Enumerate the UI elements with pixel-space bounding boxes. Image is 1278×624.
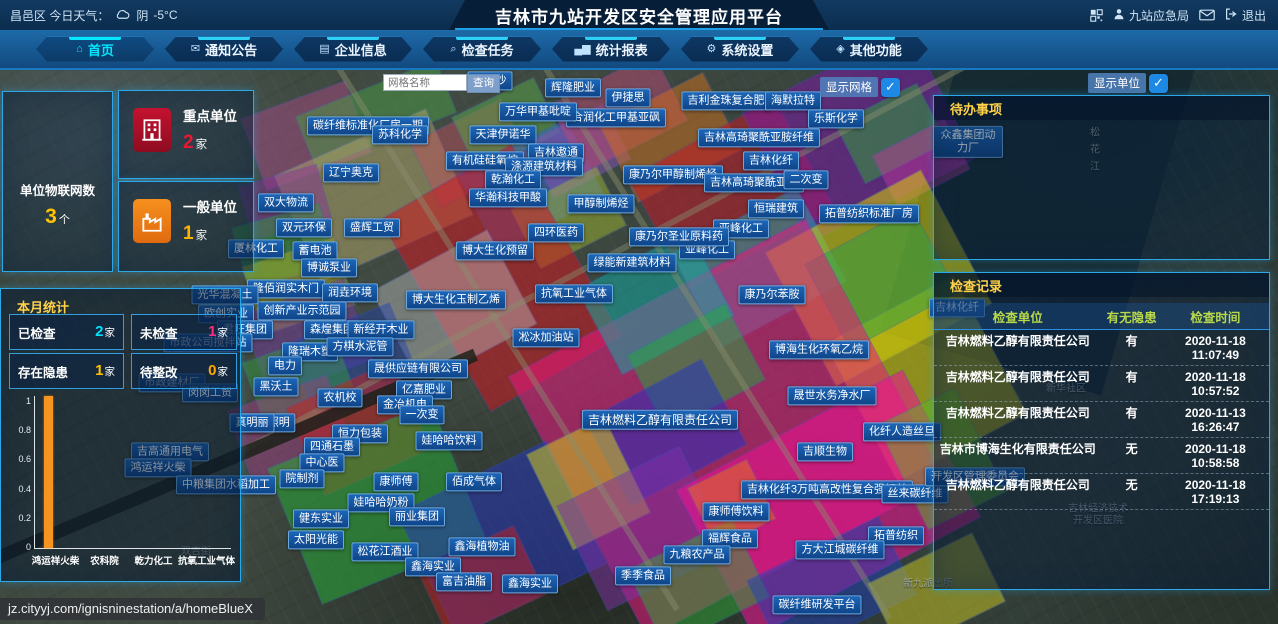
weather-label: 昌邑区 今日天气： <box>10 7 109 24</box>
iot-count-value: 3 <box>45 205 57 228</box>
map-company-label[interactable]: 康乃尔圣业原料药 <box>629 227 729 246</box>
general-units-panel: 一般单位 1家 <box>118 181 254 272</box>
nav-tab[interactable]: ▤ 企业信息 <box>294 37 412 62</box>
map-company-label[interactable]: 吉利金珠复合肥 <box>682 91 771 110</box>
map-company-label[interactable]: 鑫海植物油 <box>449 537 516 556</box>
map-company-label[interactable]: 隆佰润实木门 <box>247 279 325 298</box>
page-title: 吉林市九站开发区安全管理应用平台 <box>495 3 783 28</box>
map-company-label[interactable]: 博海生化环氧乙烷 <box>769 340 869 359</box>
bar-slot <box>133 396 182 548</box>
map-company-label[interactable]: 晟供应链有限公司 <box>368 359 468 378</box>
grid-search: 查询 <box>383 74 500 91</box>
map-company-label[interactable]: 电力 <box>268 356 302 375</box>
map-company-label[interactable]: 太阳光能 <box>288 530 344 549</box>
inspection-record-row: 吉林燃料乙醇有限责任公司 有 2020-11-1811:07:49 <box>934 330 1269 366</box>
tag-icon: ◈ <box>836 44 844 55</box>
cloud-icon <box>114 8 131 23</box>
weather-temp: -5°C <box>153 8 177 22</box>
chart-plot-area <box>34 396 231 549</box>
records-column-header: 检查单位 <box>934 307 1102 326</box>
map-company-label[interactable]: 创新产业示范园 <box>258 301 347 320</box>
stat-value: 1 <box>95 362 103 379</box>
inspection-records-panel: 检查记录 检查单位有无隐患检查时间 吉林燃料乙醇有限责任公司 有 2020-11… <box>933 272 1270 590</box>
record-time: 11:07:49 <box>1162 348 1269 362</box>
map-company-label[interactable]: 娃哈哈饮料 <box>416 431 483 450</box>
nav-tab-label: 通知公告 <box>205 40 257 59</box>
factory-icon <box>133 199 171 243</box>
bar-chart-icon: ▄▆ <box>574 44 590 55</box>
map-company-label[interactable]: 晟世水务净水厂 <box>788 386 877 405</box>
qr-code-icon[interactable] <box>1090 9 1103 22</box>
y-tick-label: 1 <box>26 396 31 406</box>
search-button[interactable]: 查询 <box>467 74 500 93</box>
map-company-label[interactable]: 抗氧工业气体 <box>535 284 613 303</box>
map-company-label[interactable]: 农机校 <box>318 388 363 407</box>
record-unit: 吉林燃料乙醇有限责任公司 <box>934 334 1102 348</box>
map-layer-toggle[interactable]: 显示单位 <box>1088 73 1168 93</box>
record-unit: 吉林市博海生化有限责任公司 <box>934 442 1102 456</box>
stat-label: 未检查 <box>140 323 178 342</box>
todo-panel: 待办事项 <box>933 95 1270 260</box>
logout-label: 退出 <box>1242 7 1266 24</box>
bar-slot <box>84 396 133 548</box>
app-header: 昌邑区 今日天气： 阴 -5°C 吉林市九站开发区安全管理应用平台 九站应急局 … <box>0 0 1278 31</box>
record-hazard: 有 <box>1102 370 1162 384</box>
map-company-label[interactable]: 化纤人造丝旦 <box>863 422 941 441</box>
iot-count-panel: 单位物联网数 3个 <box>2 91 113 272</box>
stat-unit: 家 <box>218 327 229 339</box>
monthly-stat-box: 已检查 2家 <box>9 314 124 350</box>
stat-value: 2 <box>95 323 103 340</box>
bar-slot <box>182 396 231 548</box>
map-company-label[interactable]: 双元环保 <box>276 218 332 237</box>
logout-icon <box>1225 8 1238 23</box>
record-unit: 吉林燃料乙醇有限责任公司 <box>934 370 1102 384</box>
record-date: 2020-11-18 <box>1162 334 1269 348</box>
monthly-stats-panel: 本月统计 已检查 2家 未检查 1家 存在隐患 1家 待整改 0家 <box>0 288 241 582</box>
chart-y-axis: 10.80.60.40.20 <box>7 393 31 549</box>
stat-unit: 家 <box>105 327 116 339</box>
nav-tab[interactable]: ✉ 通知公告 <box>165 37 283 62</box>
map-company-label[interactable]: 盛辉工贸 <box>344 218 400 237</box>
monthly-stat-box: 存在隐患 1家 <box>9 353 124 389</box>
records-title: 检查记录 <box>950 276 1002 295</box>
record-time: 16:26:47 <box>1162 420 1269 434</box>
logout-button[interactable]: 退出 <box>1225 7 1266 24</box>
map-company-label[interactable]: 乐斯化学 <box>808 109 864 128</box>
main-nav: ⌂ 首页 ✉ 通知公告 ▤ 企业信息 ⌕ 检查任务 ▄▆ 统计报表 ⚙ 系统设置… <box>0 30 1278 68</box>
nav-tab-label: 其他功能 <box>850 40 902 59</box>
record-hazard: 无 <box>1102 478 1162 492</box>
stat-label: 已检查 <box>18 323 56 342</box>
toggle-label: 显示网格 <box>820 77 878 97</box>
x-tick-label: 抗氧工业气体 <box>178 553 235 567</box>
nav-tab-label: 检查任务 <box>462 40 514 59</box>
mail-icon[interactable] <box>1199 9 1215 21</box>
map-company-label[interactable]: 康乃尔苯胺 <box>739 285 806 304</box>
inspection-record-row: 吉林燃料乙醇有限责任公司 有 2020-11-1810:57:52 <box>934 366 1269 402</box>
chart-x-axis: 鸿运祥火柴农科院乾力化工抗氧工业气体 <box>31 553 235 567</box>
map-company-label[interactable]: 伊捷思 <box>606 88 651 107</box>
general-units-unit: 家 <box>196 230 208 242</box>
weather-info: 昌邑区 今日天气： 阴 -5°C <box>0 7 178 24</box>
todo-title: 待办事项 <box>950 99 1002 118</box>
map-company-label[interactable]: 润垚环境 <box>322 283 378 302</box>
iot-count-title: 单位物联网数 <box>3 180 112 199</box>
stat-unit: 家 <box>105 366 116 378</box>
monthly-stat-box: 待整改 0家 <box>131 353 237 389</box>
map-company-label[interactable]: 二次变 <box>784 170 829 189</box>
nav-tab[interactable]: ◈ 其他功能 <box>810 37 928 62</box>
key-units-value: 2 <box>183 132 194 153</box>
y-tick-label: 0.6 <box>18 454 31 464</box>
monthly-stat-box: 未检查 1家 <box>131 314 237 350</box>
y-tick-label: 0.4 <box>18 484 31 494</box>
record-hazard: 无 <box>1102 442 1162 456</box>
record-unit: 吉林燃料乙醇有限责任公司 <box>934 406 1102 420</box>
map-company-label[interactable]: 天津伊诺华 <box>470 125 537 144</box>
stat-value: 0 <box>208 362 216 379</box>
map-company-label[interactable]: 四环医药 <box>528 223 584 242</box>
map-company-label[interactable]: 双大物流 <box>258 193 314 212</box>
grid-search-input[interactable] <box>383 74 467 91</box>
nav-tab[interactable]: ⌂ 首页 <box>36 37 154 62</box>
map-company-label[interactable]: 吉林高琦聚酰亚胺纤维 <box>698 128 820 147</box>
x-tick-label: 乾力化工 <box>129 553 178 567</box>
weather-condition: 阴 <box>136 7 148 24</box>
map-company-label[interactable]: 丽业集团 <box>389 507 445 526</box>
envelope-icon: ✉ <box>191 44 200 55</box>
user-icon <box>1113 8 1125 23</box>
map-company-label[interactable]: 恒瑞建筑 <box>748 199 804 218</box>
record-date: 2020-11-18 <box>1162 478 1269 492</box>
record-date: 2020-11-18 <box>1162 442 1269 456</box>
inspection-record-row: 吉林燃料乙醇有限责任公司 有 2020-11-1316:26:47 <box>934 402 1269 438</box>
map-company-label[interactable]: 季季食品 <box>615 566 671 585</box>
monthly-stats-title: 本月统计 <box>1 289 240 316</box>
map-layer-toggle[interactable]: 显示网格 <box>820 77 900 97</box>
map-company-label[interactable]: 康师傅饮料 <box>703 502 770 521</box>
nav-tab[interactable]: ▄▆ 统计报表 <box>552 37 670 62</box>
map-company-label[interactable]: 辽宁奥克 <box>323 163 379 182</box>
bar-slot <box>35 396 84 548</box>
map-company-label[interactable]: 吉顺生物 <box>797 442 853 461</box>
map-company-label[interactable]: 拓普纺织标准厂房 <box>819 204 919 223</box>
map-company-label[interactable]: 万华甲基吡啶 <box>499 102 577 121</box>
chart-bar <box>44 396 53 548</box>
general-units-title: 一般单位 <box>183 196 237 216</box>
x-tick-label: 鸿运祥火柴 <box>31 553 80 567</box>
building-icon <box>133 108 171 152</box>
nav-tab[interactable]: ⌕ 检查任务 <box>423 37 541 62</box>
map-company-label[interactable]: 乾瀚化工 <box>485 170 541 189</box>
x-tick-label: 农科院 <box>80 553 129 567</box>
record-time: 10:58:58 <box>1162 456 1269 470</box>
key-units-unit: 家 <box>196 139 208 151</box>
general-units-value: 1 <box>183 223 194 244</box>
map-company-label[interactable]: 九粮农产品 <box>664 545 731 564</box>
map-company-label[interactable]: 合润化工甲基亚砜 <box>566 108 666 127</box>
map-company-label[interactable]: 海默拉特 <box>765 91 821 110</box>
map-company-label[interactable]: 佰成气体 <box>446 472 502 491</box>
home-icon: ⌂ <box>76 44 83 55</box>
map-company-label[interactable]: 康师傅 <box>374 472 419 491</box>
magnifier-icon: ⌕ <box>450 44 456 55</box>
map-company-label[interactable]: 院制剂 <box>280 469 325 488</box>
map-company-label[interactable]: 博大生化玉制乙烯 <box>406 290 506 309</box>
user-menu[interactable]: 九站应急局 <box>1113 7 1189 24</box>
map-company-label[interactable]: 方棋水泥管 <box>327 337 394 356</box>
stat-unit: 家 <box>218 366 229 378</box>
monthly-bar-chart: 10.80.60.40.20 鸿运祥火柴农科院乾力化工抗氧工业气体 <box>7 393 235 567</box>
stat-label: 待整改 <box>140 362 178 381</box>
y-tick-label: 0.8 <box>18 425 31 435</box>
inspection-record-row: 吉林市博海生化有限责任公司 无 2020-11-1810:58:58 <box>934 438 1269 474</box>
record-hazard: 有 <box>1102 406 1162 420</box>
map-company-label[interactable]: 一次变 <box>400 405 445 424</box>
map-company-label[interactable]: 碳纤维研发平台 <box>773 595 862 614</box>
record-unit: 吉林燃料乙醇有限责任公司 <box>934 478 1102 492</box>
stat-value: 1 <box>208 323 216 340</box>
nav-tab-label: 企业信息 <box>335 40 387 59</box>
map-company-label[interactable]: 方大江城碳纤维 <box>796 540 885 559</box>
link-preview-statusbar: jz.cityyj.com/ignisninestation/a/homeBlu… <box>0 598 265 620</box>
nav-tab-label: 首页 <box>88 40 114 59</box>
nav-tab-label: 系统设置 <box>721 40 773 59</box>
iot-count-unit: 个 <box>59 214 70 226</box>
map-company-label[interactable]: 绿能新建筑材料 <box>588 253 677 272</box>
key-units-title: 重点单位 <box>183 105 237 125</box>
map-company-label[interactable]: 博大生化预留 <box>456 241 534 260</box>
records-body: 吉林燃料乙醇有限责任公司 有 2020-11-1811:07:49 吉林燃料乙醇… <box>934 330 1269 510</box>
record-time: 17:19:13 <box>1162 492 1269 506</box>
title-band: 吉林市九站开发区安全管理应用平台 <box>449 0 829 30</box>
map-company-label[interactable]: 富吉油脂 <box>436 572 492 591</box>
document-icon: ▤ <box>319 44 329 55</box>
record-date: 2020-11-13 <box>1162 406 1269 420</box>
map-company-label[interactable]: 辉隆肥业 <box>545 78 601 97</box>
map-company-label[interactable]: 健东实业 <box>293 509 349 528</box>
records-column-header: 有无隐患 <box>1102 307 1162 326</box>
map-company-label[interactable]: 黑沃土 <box>254 377 299 396</box>
inspection-record-row: 吉林燃料乙醇有限责任公司 无 2020-11-1817:19:13 <box>934 474 1269 510</box>
map-company-label[interactable]: 甲醇制烯烃 <box>568 194 635 213</box>
record-time: 10:57:52 <box>1162 384 1269 398</box>
nav-tab[interactable]: ⚙ 系统设置 <box>681 37 799 62</box>
record-date: 2020-11-18 <box>1162 370 1269 384</box>
records-header-row: 检查单位有无隐患检查时间 <box>934 303 1269 330</box>
y-tick-label: 0 <box>26 542 31 552</box>
map-company-label[interactable]: 鑫海实业 <box>502 574 558 593</box>
map-company-label[interactable]: 凇冰加油站 <box>513 328 580 347</box>
checkbox-icon[interactable] <box>881 78 900 97</box>
nav-tab-label: 统计报表 <box>596 40 648 59</box>
key-units-panel: 重点单位 2家 <box>118 90 254 179</box>
record-hazard: 有 <box>1102 334 1162 348</box>
user-name: 九站应急局 <box>1129 7 1189 24</box>
y-tick-label: 0.2 <box>18 513 31 523</box>
checkbox-icon[interactable] <box>1149 74 1168 93</box>
map-company-label[interactable]: 吉林化纤 <box>743 151 799 170</box>
toggle-label: 显示单位 <box>1088 73 1146 93</box>
map-company-label[interactable]: 吉林燃料乙醇有限责任公司 <box>582 410 738 430</box>
map-company-label[interactable]: 华瀚科技甲酸 <box>469 188 547 207</box>
map-company-label[interactable]: 博诚泵业 <box>301 258 357 277</box>
gear-icon: ⚙ <box>707 44 717 55</box>
stat-label: 存在隐患 <box>18 362 68 381</box>
records-column-header: 检查时间 <box>1162 307 1269 326</box>
map-company-label[interactable]: 苏科化学 <box>372 125 428 144</box>
